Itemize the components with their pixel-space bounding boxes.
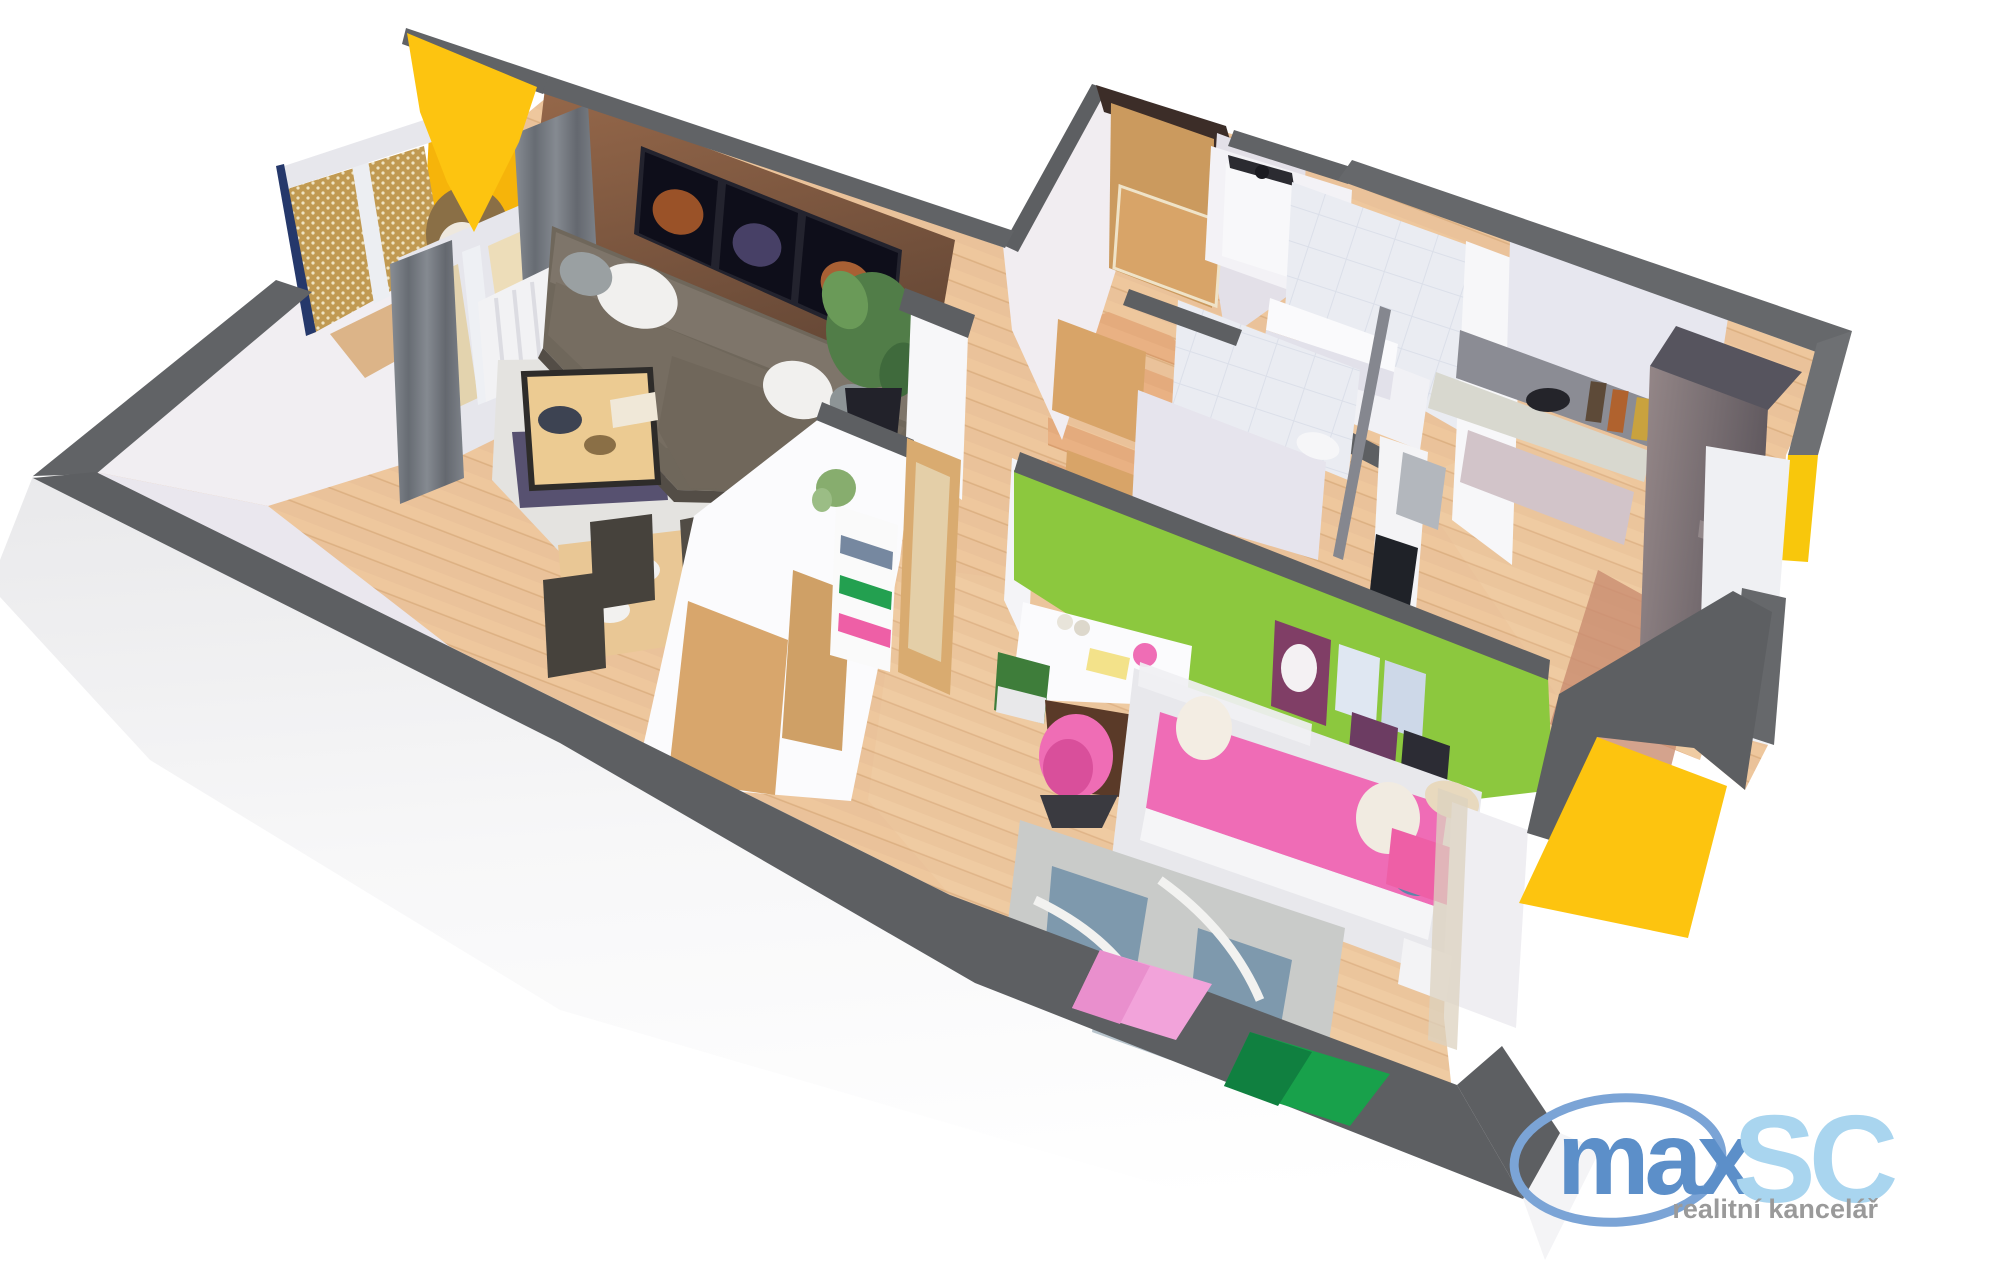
- svg-text:realitní kancelář: realitní kancelář: [1672, 1194, 1878, 1224]
